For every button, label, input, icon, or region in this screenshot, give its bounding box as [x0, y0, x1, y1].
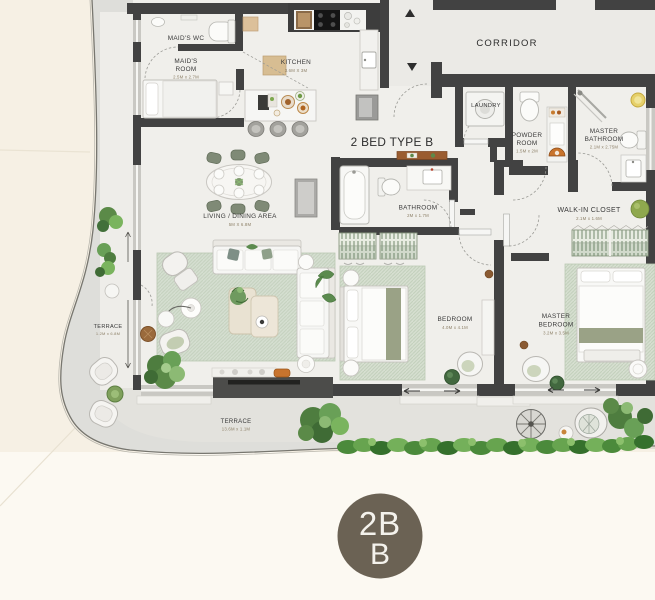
svg-text:BEDROOM: BEDROOM: [437, 316, 472, 323]
svg-text:3.2M x 3.5M: 3.2M x 3.5M: [543, 331, 569, 336]
svg-text:2.1M x 2.75M: 2.1M x 2.75M: [590, 145, 619, 150]
svg-text:POWDER: POWDER: [512, 132, 543, 139]
svg-text:1.5M x 2M: 1.5M x 2M: [516, 149, 538, 154]
svg-text:2M x 1.7M: 2M x 1.7M: [407, 213, 429, 218]
svg-text:2 BED TYPE B: 2 BED TYPE B: [351, 135, 434, 149]
svg-text:LIVING / DINING AREA: LIVING / DINING AREA: [203, 213, 277, 220]
svg-text:MASTER: MASTER: [590, 128, 619, 135]
svg-text:TERRACE: TERRACE: [221, 419, 252, 425]
svg-text:2B: 2B: [359, 505, 401, 542]
svg-text:1.2M x 6.8M: 1.2M x 6.8M: [96, 331, 120, 336]
svg-text:WALK-IN CLOSET: WALK-IN CLOSET: [557, 207, 620, 214]
svg-text:MAID'S WC: MAID'S WC: [168, 35, 205, 42]
svg-text:5M X 6.8M: 5M X 6.8M: [229, 222, 252, 227]
svg-text:4.0M x 4.1M: 4.0M x 4.1M: [442, 325, 468, 330]
svg-text:ROOM: ROOM: [516, 140, 537, 147]
svg-text:KITCHEN: KITCHEN: [281, 59, 311, 66]
svg-text:2.1M x 1.6M: 2.1M x 1.6M: [576, 216, 602, 221]
svg-text:BATHROOM: BATHROOM: [399, 205, 438, 212]
svg-text:CORRIDOR: CORRIDOR: [476, 38, 537, 49]
svg-text:MAID'S: MAID'S: [174, 58, 197, 65]
svg-text:3.6M X 3M: 3.6M X 3M: [285, 68, 308, 73]
svg-text:MASTER: MASTER: [542, 313, 571, 320]
svg-text:BEDROOM: BEDROOM: [538, 322, 573, 329]
svg-text:ROOM: ROOM: [175, 66, 196, 73]
svg-text:LAUNDRY: LAUNDRY: [471, 103, 501, 109]
svg-text:2.5M x 2.7M: 2.5M x 2.7M: [173, 75, 199, 80]
svg-text:13.6M x 1.1M: 13.6M x 1.1M: [222, 427, 251, 432]
svg-text:TERRACE: TERRACE: [94, 324, 123, 330]
svg-text:BATHROOM: BATHROOM: [585, 136, 624, 143]
svg-text:B: B: [370, 538, 390, 571]
